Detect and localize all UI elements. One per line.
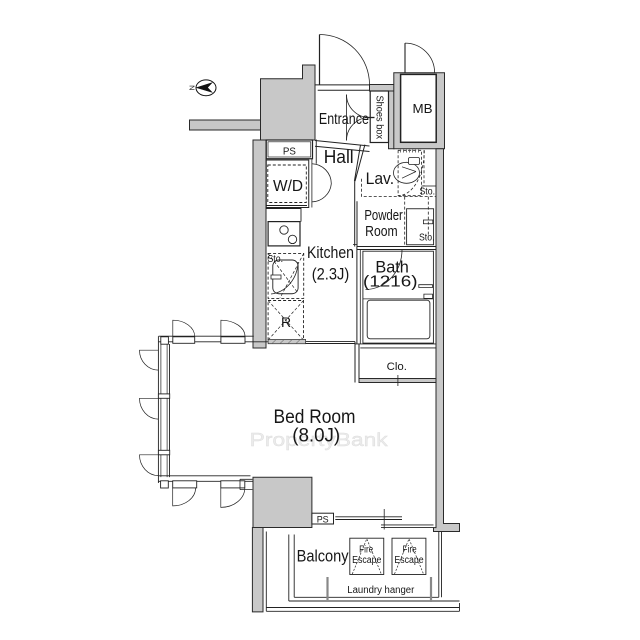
svg-text:Hall: Hall [324,147,354,167]
svg-text:PS: PS [317,514,329,525]
svg-text:Escape: Escape [394,555,424,566]
svg-text:Kitchen: Kitchen [307,244,354,262]
svg-text:Balcony: Balcony [297,548,350,566]
svg-text:Powder: Powder [364,208,403,224]
svg-text:Laundry hanger: Laundry hanger [347,585,415,596]
svg-text:Escape: Escape [352,555,382,566]
svg-text:Room: Room [365,224,398,240]
svg-text:Lav.: Lav. [366,170,395,188]
svg-text:W/D: W/D [273,178,303,195]
svg-text:Clo.: Clo. [387,361,407,373]
svg-text:N: N [188,85,197,90]
svg-text:R: R [281,314,291,330]
svg-text:Sto.: Sto. [268,254,284,265]
svg-text:(1216): (1216) [363,273,418,290]
svg-text:(2.3J): (2.3J) [312,266,350,284]
svg-text:Fire: Fire [403,544,417,555]
svg-text:(8.0J): (8.0J) [292,426,340,447]
svg-text:Shoes box: Shoes box [374,96,385,140]
svg-text:Sto.: Sto. [420,187,436,198]
svg-text:MB: MB [413,102,433,116]
svg-text:PS: PS [283,146,296,158]
svg-text:Sto.: Sto. [419,233,435,244]
svg-text:Fire: Fire [359,544,373,555]
